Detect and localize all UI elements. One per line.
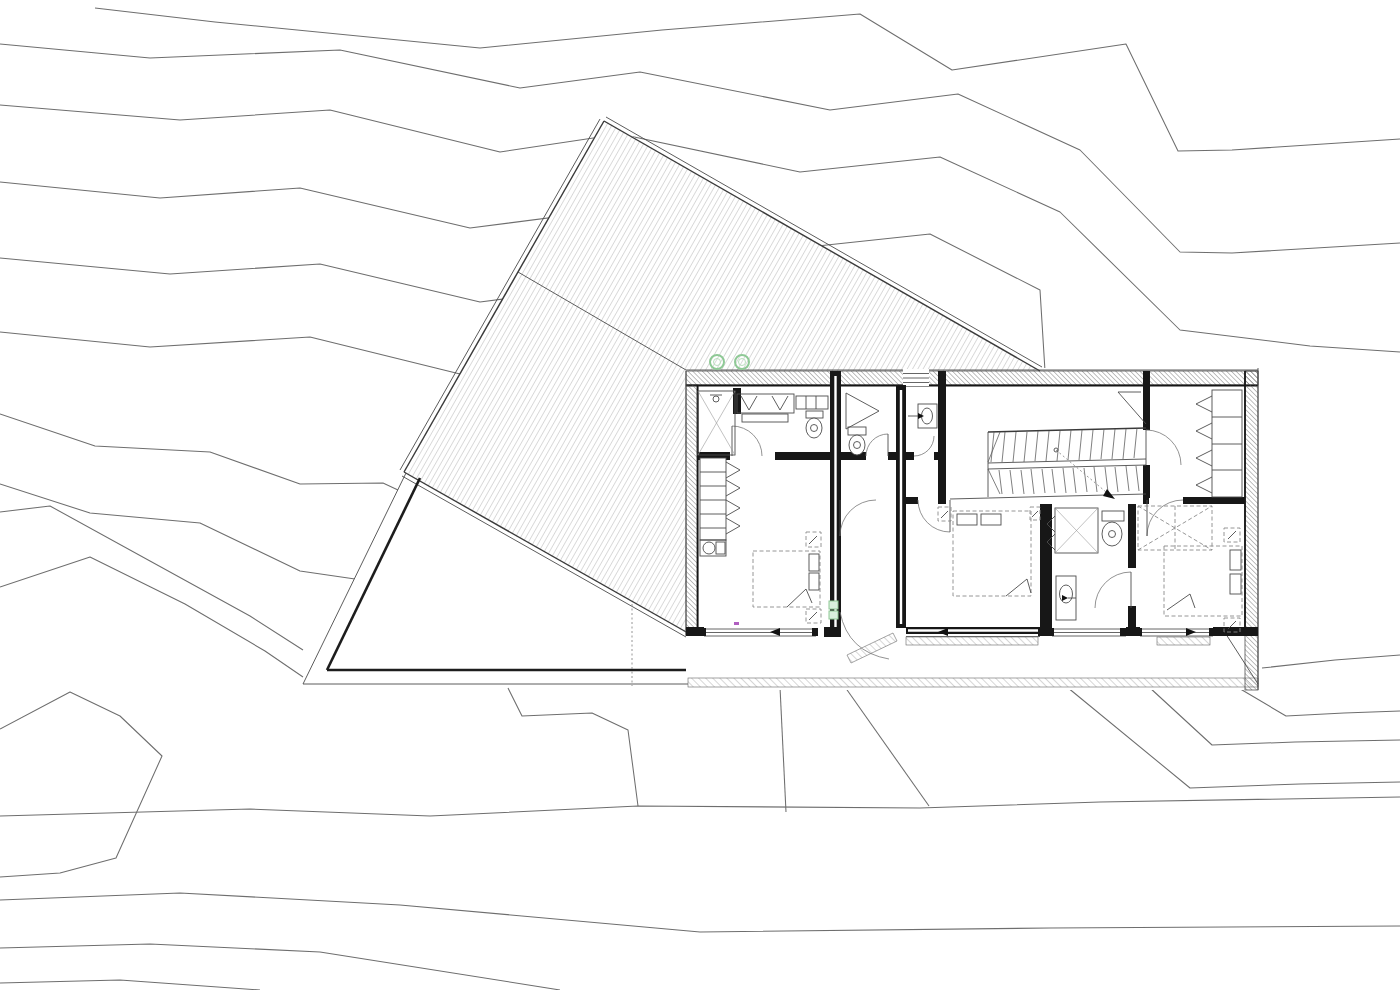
floor-plan-page <box>0 0 1400 990</box>
floor-plan-svg <box>0 0 1400 990</box>
